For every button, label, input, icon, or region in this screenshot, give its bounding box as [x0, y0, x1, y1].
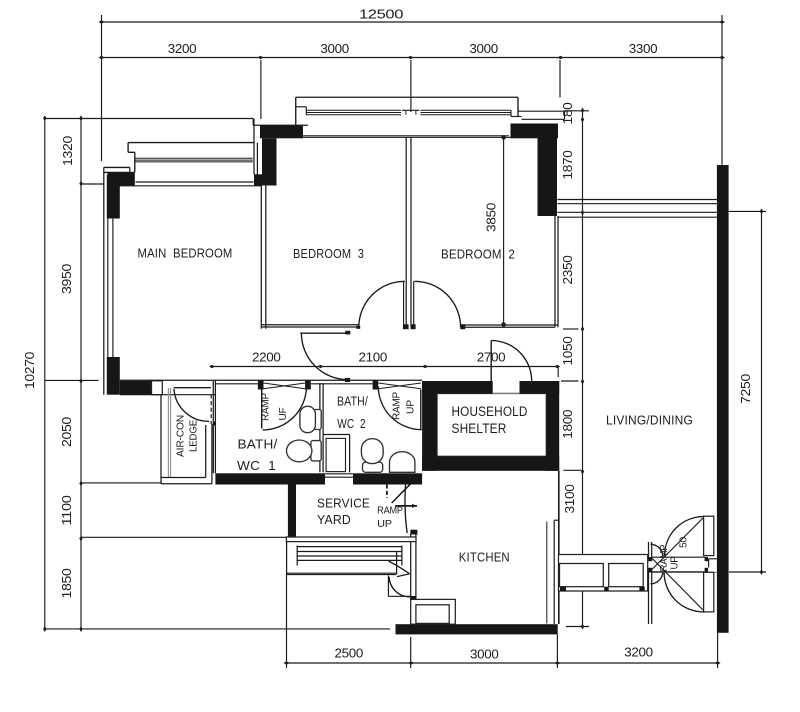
- svg-text:UP: UP: [405, 400, 417, 414]
- svg-text:1100: 1100: [60, 495, 74, 525]
- svg-text:BATH/: BATH/: [337, 394, 368, 409]
- svg-text:1850: 1850: [60, 568, 74, 598]
- svg-text:UP: UP: [669, 556, 681, 569]
- svg-text:RAMP: RAMP: [260, 393, 272, 421]
- svg-text:2200: 2200: [252, 351, 281, 365]
- svg-text:SERVICE: SERVICE: [317, 496, 370, 511]
- svg-text:3300: 3300: [629, 42, 658, 56]
- svg-text:KITCHEN: KITCHEN: [459, 550, 510, 565]
- svg-text:MAIN BEDROOM: MAIN BEDROOM: [138, 246, 233, 261]
- svg-text:LIVING/DINING: LIVING/DINING: [606, 413, 693, 428]
- svg-text:10270: 10270: [23, 352, 37, 389]
- svg-text:1320: 1320: [61, 136, 75, 166]
- svg-text:AIR-CON: AIR-CON: [175, 415, 187, 457]
- svg-text:BATH/: BATH/: [238, 437, 278, 452]
- svg-text:3850: 3850: [485, 203, 499, 232]
- svg-text:180: 180: [561, 102, 575, 124]
- svg-text:BEDROOM 2: BEDROOM 2: [441, 247, 515, 262]
- svg-text:WC 2: WC 2: [337, 416, 366, 431]
- svg-text:3950: 3950: [60, 264, 74, 294]
- svg-text:HOUSEHOLD: HOUSEHOLD: [452, 404, 528, 420]
- svg-text:2350: 2350: [561, 255, 575, 284]
- svg-text:50: 50: [678, 537, 690, 548]
- svg-text:BEDROOM 3: BEDROOM 3: [293, 246, 364, 261]
- svg-text:3200: 3200: [168, 42, 197, 56]
- svg-text:1050: 1050: [561, 336, 575, 365]
- svg-text:2500: 2500: [335, 647, 364, 661]
- svg-text:1800: 1800: [561, 409, 575, 438]
- svg-text:12500: 12500: [359, 8, 403, 22]
- svg-text:3000: 3000: [470, 648, 499, 662]
- svg-text:7250: 7250: [739, 374, 753, 404]
- svg-text:3000: 3000: [469, 42, 498, 56]
- svg-text:UP: UP: [377, 518, 392, 530]
- svg-text:WC 1: WC 1: [237, 458, 276, 473]
- svg-text:RAMP: RAMP: [391, 392, 403, 420]
- svg-text:YARD: YARD: [317, 512, 351, 527]
- svg-text:3200: 3200: [624, 646, 653, 660]
- svg-text:LEDGE: LEDGE: [188, 420, 200, 452]
- svg-text:2050: 2050: [60, 417, 74, 447]
- svg-text:RAMP: RAMP: [377, 505, 403, 517]
- svg-text:3000: 3000: [320, 42, 349, 56]
- svg-text:2100: 2100: [359, 351, 388, 365]
- svg-text:1870: 1870: [561, 150, 575, 179]
- svg-text:3100: 3100: [563, 484, 577, 513]
- svg-text:UF: UF: [277, 408, 289, 421]
- svg-text:SHELTER: SHELTER: [452, 421, 507, 437]
